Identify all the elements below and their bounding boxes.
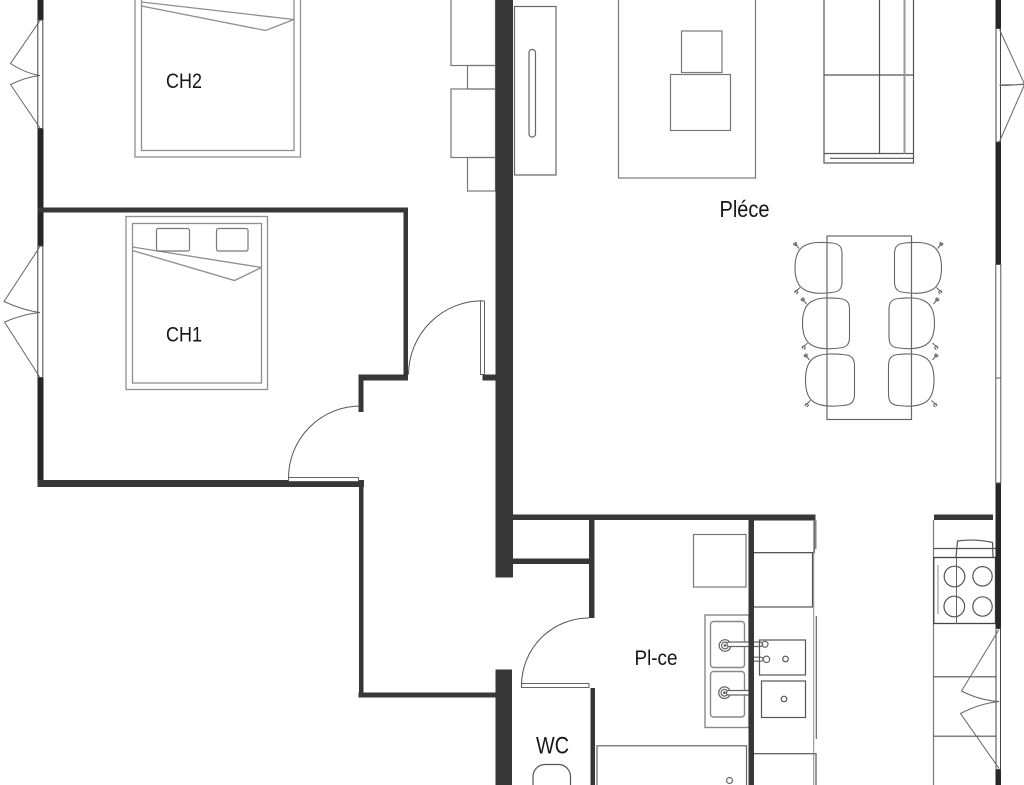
svg-text:Pléce: Pléce <box>720 196 770 222</box>
svg-text:CH1: CH1 <box>166 324 202 347</box>
svg-text:Pl-ce: Pl-ce <box>635 647 678 670</box>
svg-text:CH2: CH2 <box>166 70 202 93</box>
svg-text:WC: WC <box>536 733 569 760</box>
